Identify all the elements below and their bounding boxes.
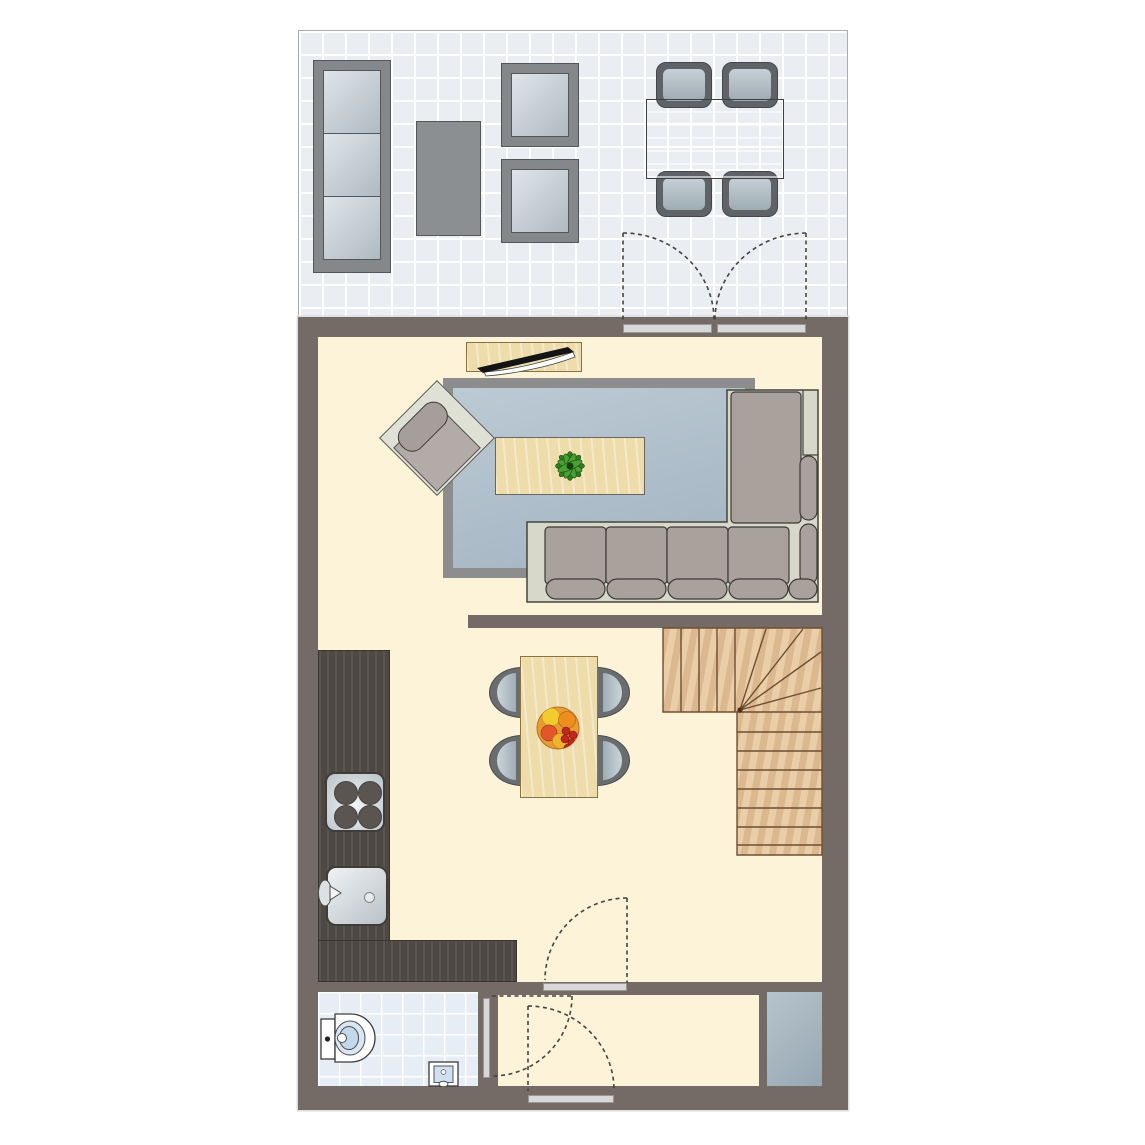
terrace-door-sill-left	[623, 324, 712, 333]
bathroom-door-sill	[483, 998, 490, 1078]
outdoor-lounge-chair	[501, 159, 579, 243]
outdoor-chair-cushion	[511, 169, 569, 233]
patio-dining-table	[646, 99, 784, 179]
staircase-lower-run	[737, 712, 822, 855]
dining-chair-seat	[497, 741, 516, 780]
storage-closet-floor	[767, 992, 822, 1086]
outdoor-lounge-chair	[501, 63, 579, 147]
dining-chair-seat	[497, 673, 516, 712]
terrace-door-sill-right	[717, 324, 806, 333]
staircase-upper-run	[663, 628, 822, 712]
patio-chair-seat	[663, 69, 705, 101]
interior-wall-living-dining	[468, 615, 822, 628]
burner	[334, 805, 358, 829]
dining-chair-seat	[603, 741, 622, 780]
sink-drain	[364, 892, 375, 903]
front-door-sill	[528, 1095, 614, 1103]
coffee-table	[495, 437, 645, 495]
living-door-sill	[543, 983, 627, 991]
patio-chair-seat	[729, 178, 771, 210]
patio-chair-seat	[729, 69, 771, 101]
outdoor-sofa	[313, 60, 391, 273]
outdoor-sofa-cushion	[323, 70, 381, 134]
bathroom-floor	[318, 992, 478, 1086]
floor-plan-canvas	[0, 0, 1145, 1145]
kitchen-sink	[326, 866, 388, 926]
patio-chair-seat	[663, 178, 705, 210]
kitchen-counter-horizontal	[318, 940, 517, 982]
outdoor-sofa-cushion	[323, 133, 381, 197]
cooktop	[325, 772, 385, 832]
dining-table	[520, 656, 598, 798]
burner	[358, 805, 382, 829]
terrace-tiled-floor	[298, 30, 848, 317]
hallway-floor	[498, 995, 759, 1086]
dining-chair-seat	[603, 673, 622, 712]
outdoor-sofa-cushion	[323, 196, 381, 260]
outdoor-chair-cushion	[511, 73, 569, 137]
burner	[358, 781, 382, 805]
burner	[334, 781, 358, 805]
outdoor-coffee-table	[416, 121, 481, 236]
tv-sideboard	[466, 342, 582, 372]
